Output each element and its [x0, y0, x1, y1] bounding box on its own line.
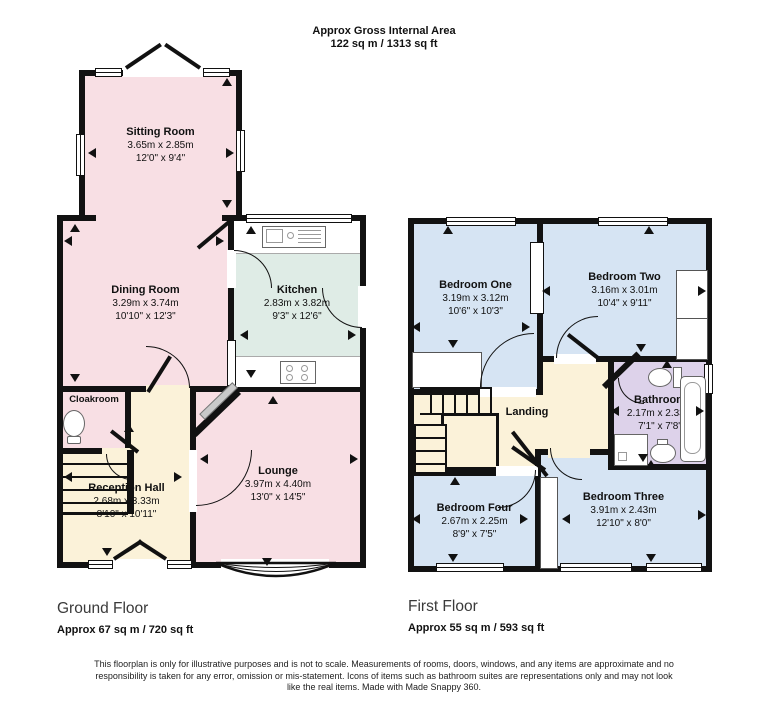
- room-label-sitting-room: Sitting Room 3.65m x 2.85m 12'0" x 9'4": [126, 126, 194, 165]
- dimension-arrow-right: [698, 510, 706, 520]
- dimension-arrow-right: [226, 148, 234, 158]
- window: [646, 563, 702, 572]
- room-label-cloakroom: Cloakroom: [69, 394, 119, 405]
- ground-floor-area: Approx 67 sq m / 720 sq ft: [57, 624, 193, 636]
- dimension-arrow-right: [522, 322, 530, 332]
- ground-floor-title: Ground Floor: [57, 600, 148, 618]
- dimension-arrow-down: [102, 548, 112, 556]
- dimension-arrow-up: [268, 396, 278, 404]
- burner: [301, 374, 308, 381]
- bathtub-icon: [680, 376, 706, 462]
- dimension-arrow-left: [542, 286, 550, 296]
- kitchen-sink-icon: [262, 226, 326, 248]
- opening-sitting-dining: [96, 214, 222, 224]
- french-door-opening: [123, 68, 203, 77]
- window: [236, 130, 245, 172]
- sink-faucet: [287, 232, 294, 239]
- dimension-arrow-left: [562, 514, 570, 524]
- room-label-landing: Landing: [467, 406, 587, 418]
- window: [88, 560, 113, 569]
- dimension-arrow-up: [662, 360, 672, 368]
- window: [167, 560, 192, 569]
- dimension-arrow-up: [246, 226, 256, 234]
- dimension-arrow-right: [696, 406, 704, 416]
- room-label-bedroom-three: Bedroom Three 3.91m x 2.43m 12'10" x 8'0…: [583, 491, 664, 530]
- sink-bowl: [266, 229, 283, 243]
- dimension-arrow-down: [222, 200, 232, 208]
- wardrobe: [676, 318, 708, 360]
- dimension-arrow-left: [240, 330, 248, 340]
- stair-landing: [441, 413, 499, 470]
- window: [76, 134, 85, 176]
- dimension-arrow-left: [200, 454, 208, 464]
- room-label-dining-room: Dining Room 3.29m x 3.74m 10'10" x 12'3": [111, 284, 179, 323]
- dimension-arrow-left: [64, 472, 72, 482]
- dimension-arrow-right: [216, 236, 224, 246]
- first-floor-title: First Floor: [408, 598, 478, 616]
- window: [598, 217, 668, 226]
- built-in-cupboard: [412, 352, 482, 388]
- room-sitting-room: Sitting Room 3.65m x 2.85m 12'0" x 9'4": [79, 70, 242, 221]
- shower-drain: [618, 452, 627, 461]
- toilet-icon: [63, 410, 85, 437]
- dimension-arrow-right: [348, 330, 356, 340]
- gross-internal-area-title: Approx Gross Internal Area: [0, 25, 768, 37]
- basin-taps: [657, 439, 668, 445]
- room-label-bedroom-two: Bedroom Two 3.16m x 3.01m 10'4" x 9'11": [588, 271, 661, 310]
- floorplan-canvas: Approx Gross Internal Area 122 sq m / 13…: [0, 0, 768, 701]
- built-in-cupboard: [540, 477, 558, 569]
- dimension-arrow-left: [88, 148, 96, 158]
- wall-recess: [530, 242, 544, 314]
- dimension-arrow-up: [450, 477, 460, 485]
- window: [246, 214, 352, 223]
- dimension-arrow-down: [636, 344, 646, 352]
- room-label-kitchen: Kitchen 2.83m x 3.82m 9'3" x 12'6": [264, 284, 330, 323]
- stairs-winder: [414, 424, 447, 474]
- dimension-arrow-right: [350, 454, 358, 464]
- dimension-arrow-down: [262, 558, 272, 566]
- dimension-arrow-right: [174, 472, 182, 482]
- window: [95, 68, 122, 77]
- dimension-arrow-right: [698, 286, 706, 296]
- gross-internal-area-value: 122 sq m / 1313 sq ft: [0, 38, 768, 50]
- bathtub-inner: [684, 382, 701, 454]
- dimension-arrow-down: [70, 374, 80, 382]
- window: [436, 563, 504, 572]
- dimension-arrow-right: [520, 514, 528, 524]
- dimension-arrow-up: [646, 460, 656, 468]
- burner: [286, 374, 293, 381]
- dimension-arrow-up: [124, 424, 134, 432]
- room-label-lounge: Lounge 3.97m x 4.40m 13'0" x 14'5": [245, 465, 311, 504]
- dimension-arrow-up: [644, 226, 654, 234]
- stove-icon: [280, 361, 316, 384]
- dimension-arrow-left: [412, 322, 420, 332]
- front-door-opening: [112, 559, 169, 569]
- dimension-arrow-left: [64, 236, 72, 246]
- toilet-cistern: [67, 436, 81, 444]
- first-floor-area: Approx 55 sq m / 593 sq ft: [408, 622, 544, 634]
- toilet-icon: [648, 368, 672, 387]
- burner: [301, 365, 308, 372]
- dimension-arrow-down: [646, 554, 656, 562]
- dimension-arrow-down: [448, 340, 458, 348]
- bay-window: [214, 561, 338, 587]
- dimension-arrow-up: [443, 226, 453, 234]
- room-label-bedroom-one: Bedroom One 3.19m x 3.12m 10'6" x 10'3": [439, 279, 512, 318]
- dimension-arrow-up: [70, 224, 80, 232]
- burner: [286, 365, 293, 372]
- dimension-arrow-down: [448, 554, 458, 562]
- disclaimer-text: This floorplan is only for illustrative …: [88, 659, 680, 694]
- dimension-arrow-down: [246, 370, 256, 378]
- sink-drainer: [298, 230, 321, 243]
- window: [203, 68, 230, 77]
- window: [560, 563, 632, 572]
- window: [446, 217, 516, 226]
- serving-hatch: [227, 340, 236, 386]
- dimension-arrow-left: [412, 514, 420, 524]
- dimension-arrow-left: [611, 406, 619, 416]
- dimension-arrow-up: [222, 78, 232, 86]
